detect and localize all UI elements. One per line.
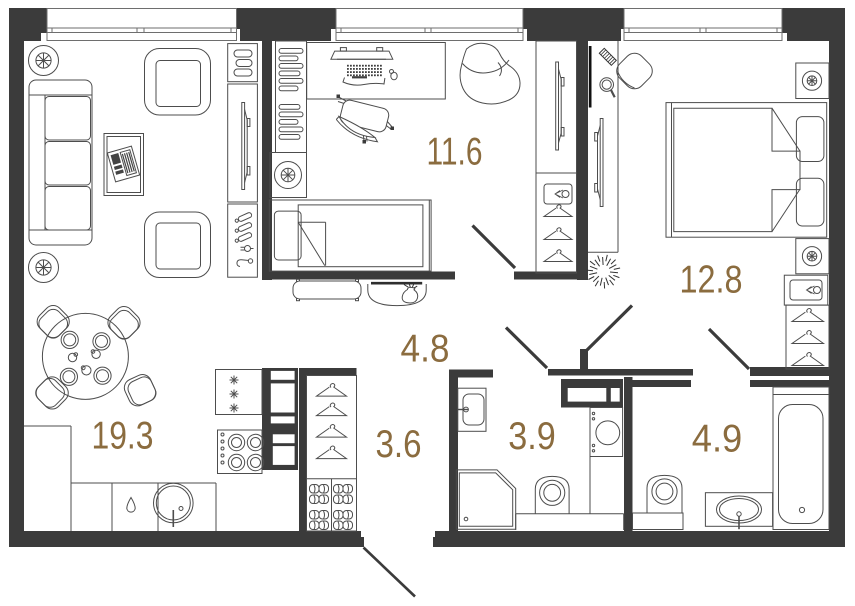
svg-text:12.8: 12.8 <box>680 259 743 302</box>
svg-text:3.9: 3.9 <box>508 415 556 458</box>
svg-text:4.8: 4.8 <box>401 328 450 371</box>
svg-text:4.9: 4.9 <box>692 418 743 461</box>
svg-text:19.3: 19.3 <box>92 415 154 458</box>
svg-text:3.6: 3.6 <box>376 423 422 466</box>
svg-text:11.6: 11.6 <box>427 131 483 174</box>
